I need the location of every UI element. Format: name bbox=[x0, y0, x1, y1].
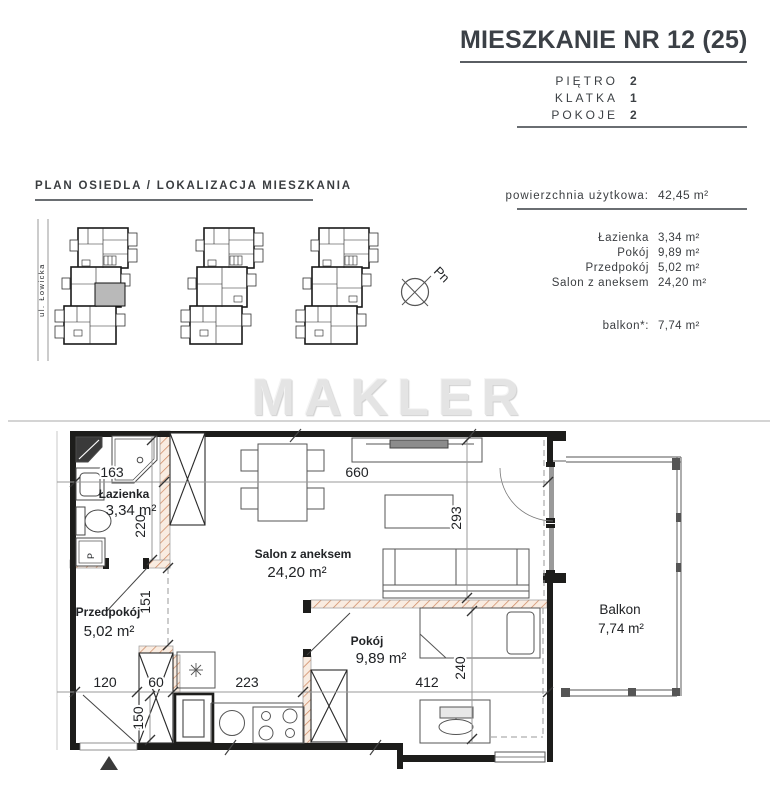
label-przedpokoj: Przedpokój bbox=[76, 605, 141, 619]
area-pokoj: 9,89 m² bbox=[356, 650, 407, 667]
washing-machine bbox=[76, 538, 105, 566]
dim-pokoj-width: 412 bbox=[415, 674, 439, 690]
bathroom-fixtures bbox=[76, 436, 157, 566]
area-salon: 24,20 m² bbox=[267, 564, 326, 581]
apartment-floor-plan: P bbox=[57, 429, 681, 770]
dim-shaft-width: 60 bbox=[148, 674, 164, 690]
bed bbox=[420, 608, 540, 658]
building-3 bbox=[296, 228, 378, 344]
entrance-opening bbox=[80, 743, 137, 750]
entrance-marker bbox=[100, 756, 118, 770]
area-przedpokoj: 5,02 m² bbox=[84, 623, 135, 640]
coffee-table bbox=[385, 495, 453, 528]
area-lazienka: 3,34 m² bbox=[106, 502, 157, 519]
compass-icon bbox=[402, 276, 432, 306]
label-pokoj: Pokój bbox=[351, 634, 384, 648]
pokoj-door-leaf bbox=[307, 613, 350, 655]
balcony bbox=[553, 457, 681, 697]
floor-plan-page: MIESZKANIE NR 12 (25) PIĘTRO 2 KLATKA 1 … bbox=[0, 0, 781, 792]
building-2 bbox=[181, 228, 263, 344]
fridge bbox=[175, 694, 213, 743]
dim-kitchen-width: 223 bbox=[235, 674, 259, 690]
label-lazienka: Łazienka bbox=[99, 487, 150, 501]
stove bbox=[253, 707, 304, 743]
area-balkon: 7,74 m² bbox=[598, 621, 644, 636]
kitchen-sink bbox=[220, 711, 245, 736]
railing-posts bbox=[561, 458, 681, 697]
tv-unit bbox=[352, 438, 482, 462]
dim-shaft-height: 150 bbox=[130, 706, 146, 730]
desk bbox=[420, 700, 490, 743]
dim-pokoj-height: 240 bbox=[452, 656, 468, 680]
dim-entry-width: 120 bbox=[93, 674, 117, 690]
balcony-door-swing bbox=[500, 468, 553, 521]
dim-bath-width: 163 bbox=[100, 464, 124, 480]
shaft-bathroom bbox=[170, 433, 205, 525]
highlighted-unit bbox=[95, 283, 125, 306]
pokoj-window bbox=[495, 752, 545, 762]
entrance-door-leaf bbox=[83, 695, 135, 742]
desk-chair bbox=[439, 720, 473, 735]
boiler-star-icon bbox=[189, 663, 203, 677]
sofa bbox=[383, 549, 529, 598]
dim-salon-height: 293 bbox=[448, 506, 464, 530]
wardrobe bbox=[311, 670, 347, 742]
shafts-and-wardrobe bbox=[139, 433, 347, 743]
site-plan: ul. Łowicka Pn bbox=[37, 219, 453, 361]
street-label: ul. Łowicka bbox=[37, 263, 46, 317]
label-salon: Salon z aneksem bbox=[255, 547, 352, 561]
kitchen bbox=[175, 652, 304, 743]
drawing-layer: ul. Łowicka Pn bbox=[0, 0, 781, 792]
dim-salon-width: 660 bbox=[345, 464, 369, 480]
label-balkon: Balkon bbox=[599, 602, 640, 617]
compass-label: Pn bbox=[431, 264, 453, 286]
washer-label: P bbox=[86, 553, 96, 559]
